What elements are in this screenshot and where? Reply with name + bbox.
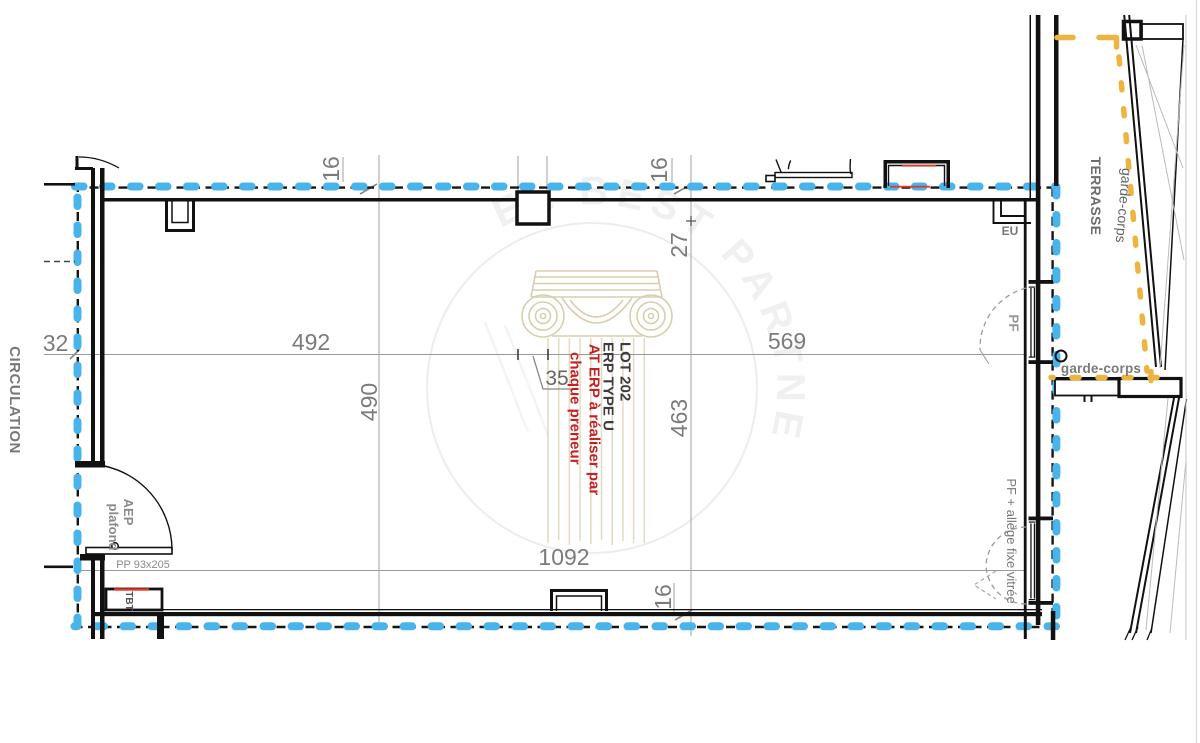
svg-text:1092: 1092 [538, 544, 589, 570]
svg-text:EU: EU [1002, 224, 1019, 238]
svg-text:TERRASSE: TERRASSE [1088, 157, 1104, 236]
svg-text:16: 16 [650, 584, 676, 610]
svg-text:PP 93x205: PP 93x205 [116, 559, 170, 571]
svg-text:35: 35 [545, 367, 568, 390]
svg-text:16: 16 [646, 157, 672, 183]
svg-text:463: 463 [666, 399, 692, 437]
svg-text:plafond: plafond [106, 504, 121, 551]
svg-text:32: 32 [43, 330, 69, 356]
svg-text:AT ERP à réaliser par: AT ERP à réaliser par [586, 344, 603, 495]
svg-text:492: 492 [292, 329, 330, 355]
svg-text:chaque preneur: chaque preneur [567, 352, 584, 465]
svg-text:27: 27 [666, 232, 692, 258]
svg-text:CIRCULATION: CIRCULATION [6, 346, 23, 454]
svg-text:490: 490 [356, 383, 382, 421]
svg-text:16: 16 [318, 156, 344, 182]
svg-text:TBT: TBT [123, 591, 134, 610]
svg-text:garde-corps: garde-corps [1061, 361, 1141, 376]
svg-text:AEP: AEP [121, 499, 136, 526]
svg-text:PF: PF [1006, 314, 1021, 331]
svg-text:569: 569 [768, 328, 806, 354]
svg-text:LOT 202: LOT 202 [617, 342, 634, 401]
svg-text:PF + allège fixe vitrée: PF + allège fixe vitrée [1004, 478, 1019, 603]
